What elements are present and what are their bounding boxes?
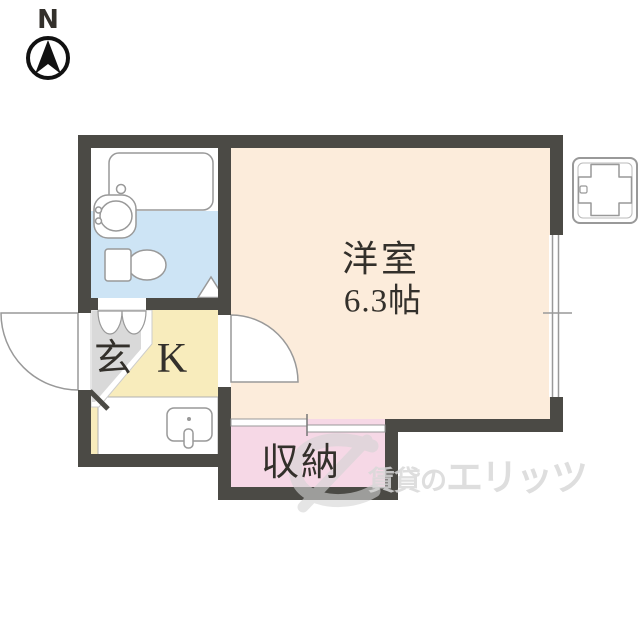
entrance-door-icon bbox=[1, 313, 78, 390]
wall-center-lower bbox=[218, 387, 231, 500]
bath-drain-icon bbox=[117, 185, 126, 194]
wall-bath-bottom-left bbox=[78, 298, 98, 310]
room-label-living-size: 6.3帖 bbox=[344, 286, 422, 319]
watermark-prefix: 賃貸の bbox=[368, 459, 446, 498]
wall-living-bottom bbox=[385, 419, 563, 432]
room-label-entrance: 玄 bbox=[94, 340, 132, 378]
compass-icon bbox=[28, 38, 68, 78]
wall-kitchen-bottom bbox=[78, 454, 231, 467]
wall-center-upper bbox=[218, 148, 231, 315]
compass-north-label: N bbox=[37, 7, 59, 33]
floor-plan-drawing bbox=[0, 0, 640, 640]
wall-left-upper bbox=[78, 135, 91, 313]
kitchen-counter bbox=[98, 397, 218, 455]
room-label-living-name: 洋室 bbox=[342, 241, 420, 277]
toilet-icon bbox=[105, 249, 166, 281]
room-label-closet: 収納 bbox=[261, 444, 341, 482]
washbasin-icon bbox=[94, 195, 136, 238]
wall-right-upper bbox=[550, 135, 563, 235]
washing-machine-pan-icon bbox=[573, 158, 637, 223]
wall-top bbox=[78, 135, 563, 148]
kitchen-doorway bbox=[218, 315, 231, 387]
wall-bath-bottom-right bbox=[146, 298, 231, 310]
watermark-brand: エリッツ bbox=[446, 447, 586, 501]
room-label-kitchen: K bbox=[157, 338, 187, 380]
floor-plan: N 洋室 6.3帖 K 玄 収納 賃貸の エリッツ bbox=[0, 0, 640, 640]
watermark: 賃貸の エリッツ bbox=[368, 447, 586, 501]
